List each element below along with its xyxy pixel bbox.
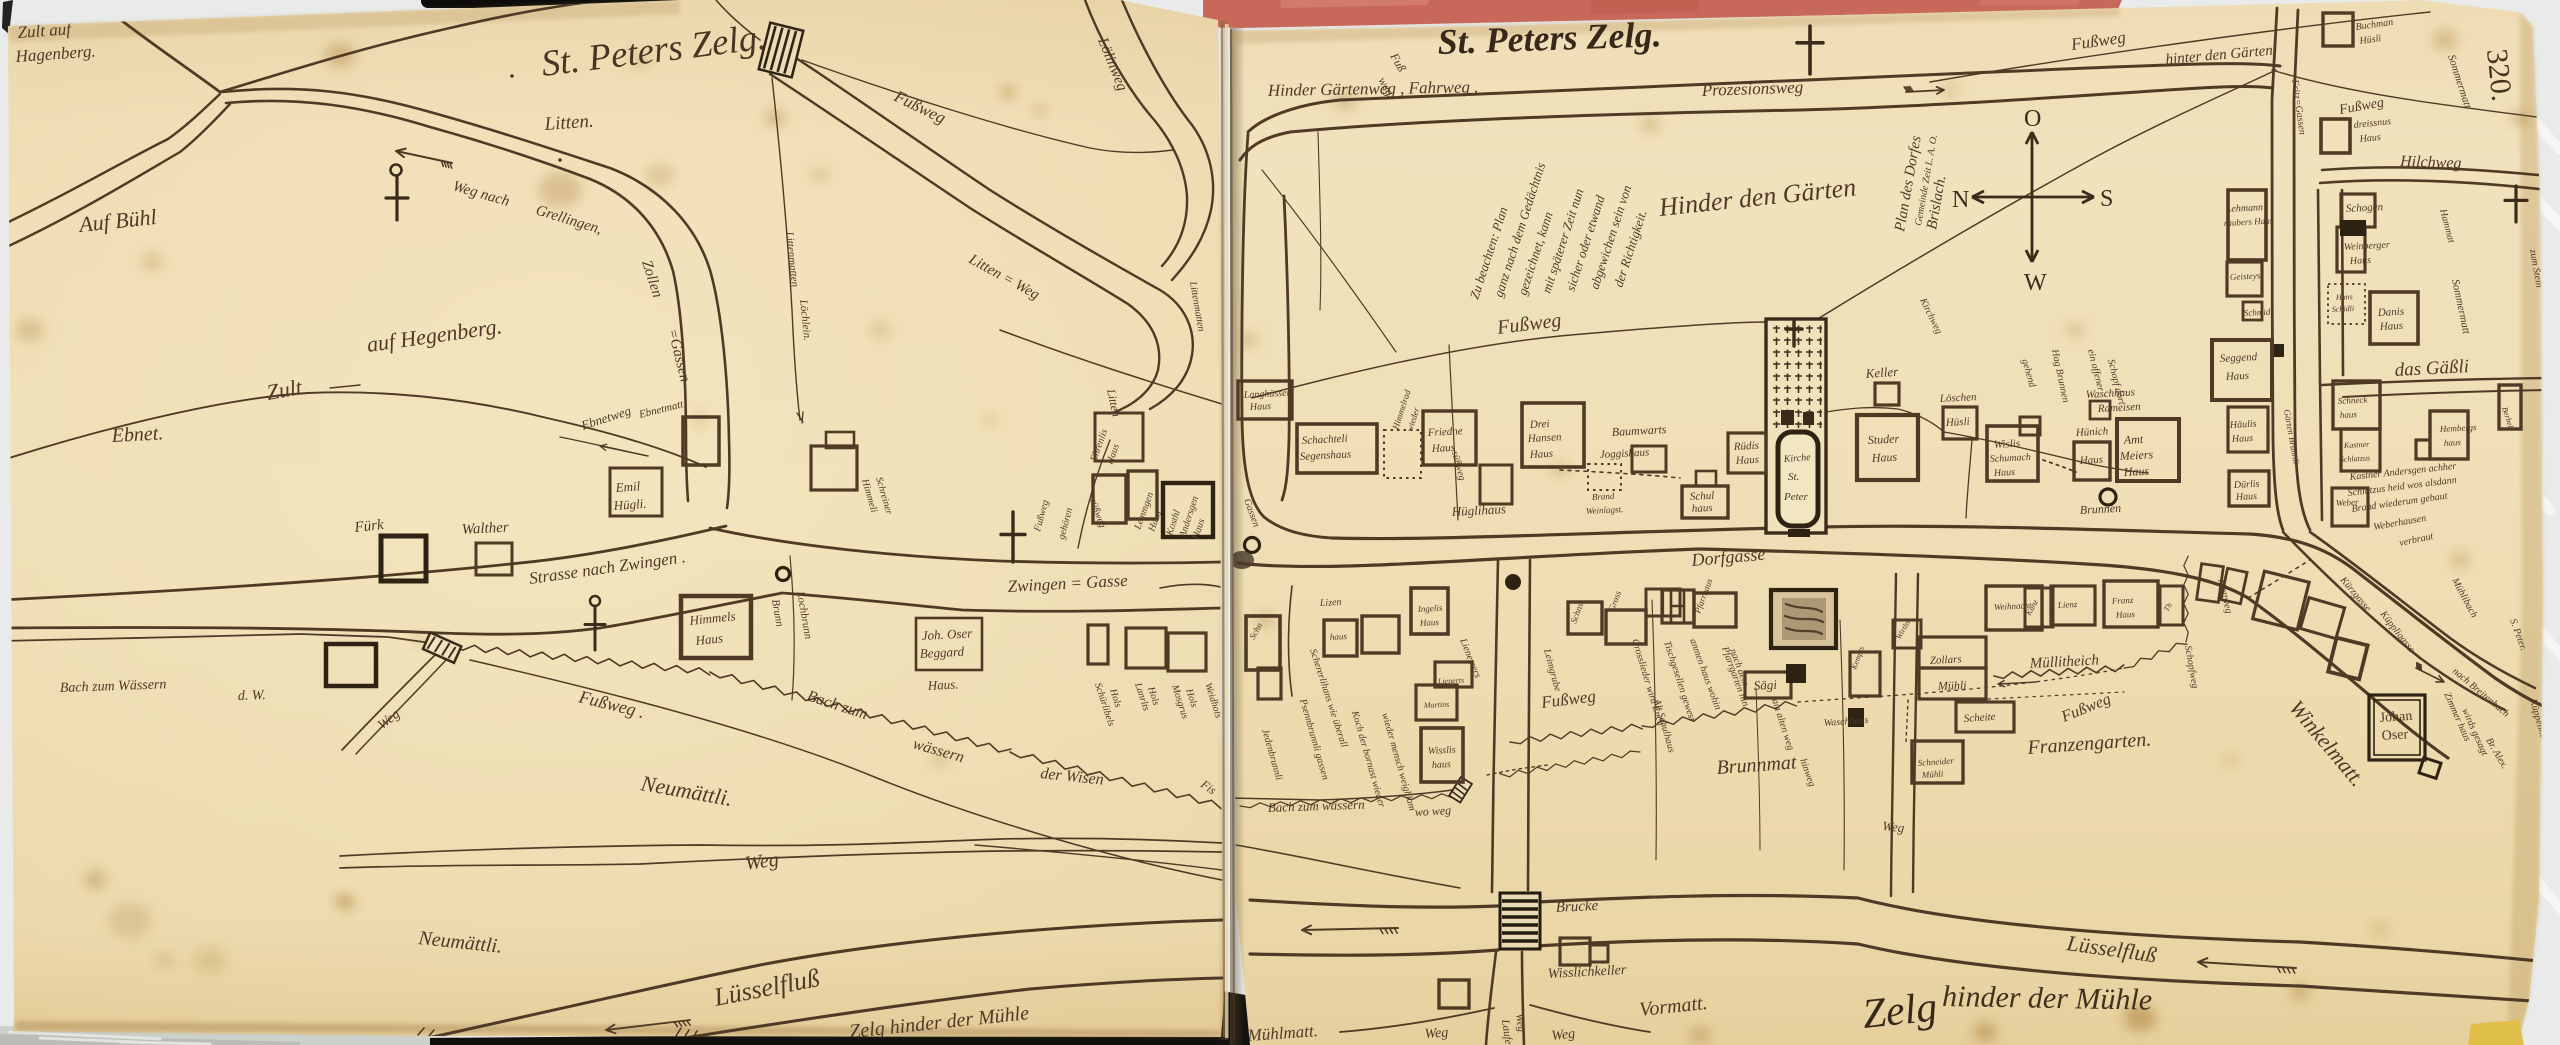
svg-text:haus: haus [1432, 759, 1452, 771]
svg-text:Schogen: Schogen [2346, 201, 2384, 215]
svg-text:Baumwarts: Baumwarts [1611, 422, 1667, 439]
svg-text:Haus: Haus [1735, 454, 1760, 467]
svg-text:Brunnen: Brunnen [2079, 501, 2121, 517]
svg-text:Schumach: Schumach [1990, 452, 2032, 465]
svg-text:Hinder Gärtenweg , Fahrweg .: Hinder Gärtenweg , Fahrweg . [1267, 77, 1479, 100]
svg-text:Haus: Haus [1249, 401, 1272, 413]
svg-text:Haus: Haus [2225, 370, 2250, 383]
svg-text:d. W.: d. W. [238, 688, 266, 704]
svg-text:Wisslis: Wisslis [1428, 745, 1456, 757]
svg-text:Schlatzus: Schlatzus [2340, 453, 2371, 464]
svg-text:Hüsli: Hüsli [1945, 416, 1970, 429]
svg-text:Peter: Peter [1783, 491, 1809, 503]
svg-text:haus: haus [2444, 437, 2462, 448]
svg-text:W: W [2024, 270, 2047, 296]
svg-text:Schul: Schul [1690, 490, 1715, 503]
svg-text:Brand: Brand [1592, 491, 1615, 502]
svg-text:Dürlis: Dürlis [2233, 479, 2260, 491]
svg-text:Mühli: Mühli [1937, 678, 1967, 693]
svg-text:haus: haus [1692, 502, 1713, 515]
svg-text:Beggard: Beggard [919, 644, 965, 661]
svg-text:Brucke: Brucke [1555, 898, 1599, 916]
svg-text:Lizen: Lizen [1319, 597, 1342, 609]
svg-text:wo weg: wo weg [1414, 803, 1451, 819]
svg-text:hinder der Mühle: hinder der Mühle [1942, 980, 2153, 1017]
svg-text:Seggend: Seggend [2220, 351, 2258, 365]
svg-text:Drei: Drei [1529, 418, 1550, 431]
svg-text:Waschhaus: Waschhaus [2086, 386, 2136, 401]
svg-text:Lehmann: Lehmann [2225, 202, 2264, 215]
svg-text:Haus: Haus [1870, 450, 1897, 465]
svg-text:Franz: Franz [2111, 595, 2134, 606]
svg-text:St.: St. [1788, 471, 1799, 483]
svg-text:Haus: Haus [1529, 448, 1554, 461]
svg-text:Hügli.: Hügli. [612, 496, 647, 513]
svg-text:Häulis: Häulis [2229, 419, 2257, 431]
svg-text:320.: 320. [2480, 47, 2518, 103]
svg-text:Walther: Walther [461, 520, 509, 538]
svg-text:Hansen: Hansen [1527, 431, 1563, 445]
svg-text:Weg: Weg [1551, 1027, 1576, 1044]
svg-text:Danis: Danis [2377, 306, 2405, 319]
svg-text:Haus: Haus [2235, 491, 2258, 503]
svg-text:Sägi: Sägi [1753, 677, 1777, 693]
svg-text:Emil: Emil [614, 478, 641, 495]
svg-text:Litten.: Litten. [543, 111, 594, 135]
svg-text:Weg: Weg [1882, 818, 1906, 835]
svg-text:Haus: Haus [694, 630, 724, 648]
svg-text:Martins: Martins [1423, 700, 1450, 710]
svg-text:Ingelis: Ingelis [1417, 603, 1443, 614]
svg-text:Hembergs: Hembergs [2439, 422, 2478, 434]
svg-text:haus: haus [2340, 409, 2358, 420]
svg-text:Mühli: Mühli [1920, 768, 1944, 780]
svg-text:Fürk: Fürk [353, 517, 385, 536]
svg-text:Haus: Haus [2231, 433, 2254, 445]
svg-text:Zollars: Zollars [1930, 653, 1962, 667]
svg-text:Geisteys: Geisteys [2230, 270, 2261, 282]
svg-text:Lienerts: Lienerts [1437, 676, 1465, 686]
svg-text:Scheite: Scheite [1963, 711, 1996, 725]
svg-text:Schachteli: Schachteli [1302, 433, 1348, 447]
svg-text:Hünich: Hünich [2075, 425, 2109, 439]
svg-text:Haus: Haus [1431, 442, 1456, 455]
svg-text:Weg: Weg [744, 848, 780, 874]
svg-text:Ebnet.: Ebnet. [110, 422, 164, 447]
svg-text:Keller: Keller [1864, 364, 1899, 381]
svg-text:Prozesionsweg: Prozesionsweg [1700, 77, 1803, 100]
svg-text:Weinlagst.: Weinlagst. [1586, 504, 1624, 516]
svg-text:Haus: Haus [2079, 454, 2104, 467]
svg-text:Haus: Haus [2349, 255, 2372, 267]
svg-text:Amt: Amt [2122, 432, 2144, 447]
svg-text:Schmid: Schmid [2244, 307, 2271, 318]
svg-text:Kirche: Kirche [1782, 452, 1811, 465]
svg-text:Hans: Hans [2335, 292, 2353, 302]
svg-text:Haus: Haus [1993, 467, 2016, 479]
svg-text:Wislis: Wislis [1994, 438, 2021, 451]
svg-text:Schneck: Schneck [2338, 394, 2369, 406]
svg-text:Johan: Johan [2379, 709, 2413, 726]
svg-text:Haus: Haus [2379, 320, 2404, 333]
svg-text:Haus: Haus [1419, 617, 1440, 628]
svg-text:Lienz: Lienz [2057, 599, 2078, 610]
svg-text:Zelg: Zelg [1860, 984, 1939, 1038]
svg-text:O: O [2024, 106, 2041, 132]
svg-text:Studer: Studer [1867, 431, 1899, 447]
svg-text:Weg: Weg [1424, 1025, 1449, 1042]
svg-text:Haus: Haus [2122, 464, 2149, 479]
svg-text:Meiers: Meiers [2118, 447, 2153, 463]
svg-text:das Gäßli: das Gäßli [2394, 356, 2469, 381]
svg-text:S: S [2100, 186, 2113, 212]
svg-text:Schidli: Schidli [2332, 304, 2355, 314]
svg-text:haus: haus [1330, 631, 1348, 642]
svg-text:Joh. Oser: Joh. Oser [921, 625, 973, 643]
svg-text:N: N [1952, 187, 1969, 213]
svg-text:Haus: Haus [2358, 132, 2381, 145]
svg-text:Friedne: Friedne [1427, 425, 1464, 439]
svg-text:Hilchweg: Hilchweg [2399, 153, 2462, 172]
svg-text:Rüdis: Rüdis [1733, 440, 1760, 453]
svg-text:Haus.: Haus. [926, 676, 958, 693]
svg-text:Haus: Haus [2115, 609, 2136, 620]
svg-text:Kastner: Kastner [2343, 440, 2371, 450]
svg-text:Löschen: Löschen [1939, 391, 1978, 405]
svg-text:Oser: Oser [2381, 727, 2409, 744]
